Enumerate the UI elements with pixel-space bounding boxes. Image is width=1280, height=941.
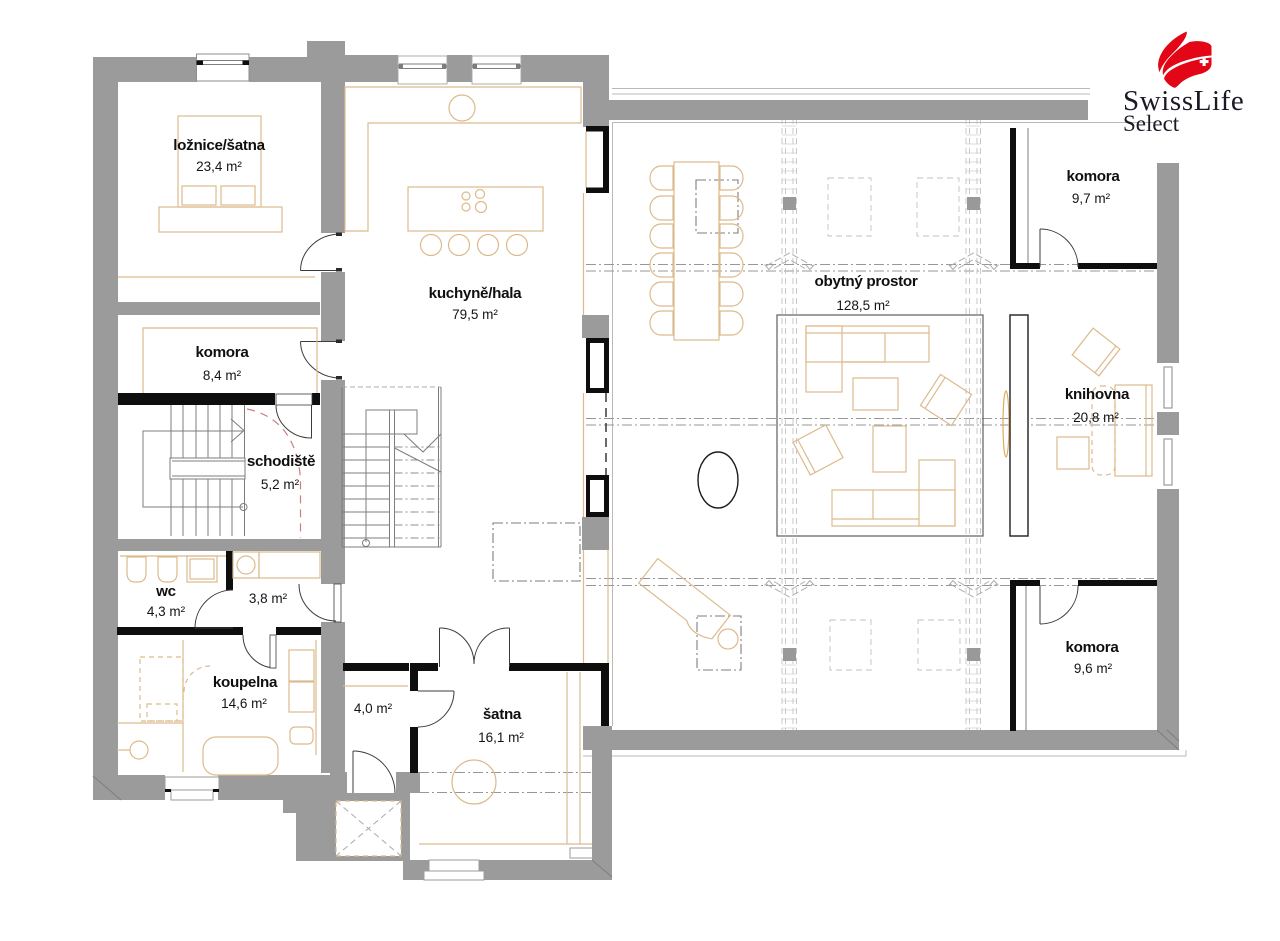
svg-text:wc: wc: [155, 583, 176, 600]
svg-text:14,6 m²: 14,6 m²: [221, 696, 267, 711]
svg-text:4,0 m²: 4,0 m²: [354, 701, 393, 716]
svg-text:23,4 m²: 23,4 m²: [196, 159, 242, 174]
svg-text:16,1 m²: 16,1 m²: [478, 730, 524, 745]
svg-text:komora: komora: [195, 344, 249, 361]
svg-text:ložnice/šatna: ložnice/šatna: [173, 137, 265, 154]
svg-text:kuchyně/hala: kuchyně/hala: [429, 285, 522, 302]
svg-text:obytný prostor: obytný prostor: [815, 273, 918, 290]
svg-text:9,6 m²: 9,6 m²: [1074, 661, 1113, 676]
svg-text:5,2 m²: 5,2 m²: [261, 477, 300, 492]
svg-text:koupelna: koupelna: [213, 674, 278, 691]
svg-text:8,4 m²: 8,4 m²: [203, 368, 242, 383]
svg-text:128,5 m²: 128,5 m²: [836, 298, 890, 313]
svg-text:šatna: šatna: [483, 706, 522, 723]
svg-text:Select: Select: [1123, 111, 1180, 136]
svg-text:knihovna: knihovna: [1065, 386, 1130, 403]
svg-text:20,8 m²: 20,8 m²: [1073, 410, 1119, 425]
svg-text:3,8 m²: 3,8 m²: [249, 591, 288, 606]
svg-text:komora: komora: [1065, 639, 1119, 656]
svg-text:komora: komora: [1066, 168, 1120, 185]
svg-text:79,5 m²: 79,5 m²: [452, 307, 498, 322]
svg-text:9,7 m²: 9,7 m²: [1072, 191, 1111, 206]
svg-text:schodiště: schodiště: [247, 453, 315, 470]
svg-text:4,3 m²: 4,3 m²: [147, 604, 186, 619]
